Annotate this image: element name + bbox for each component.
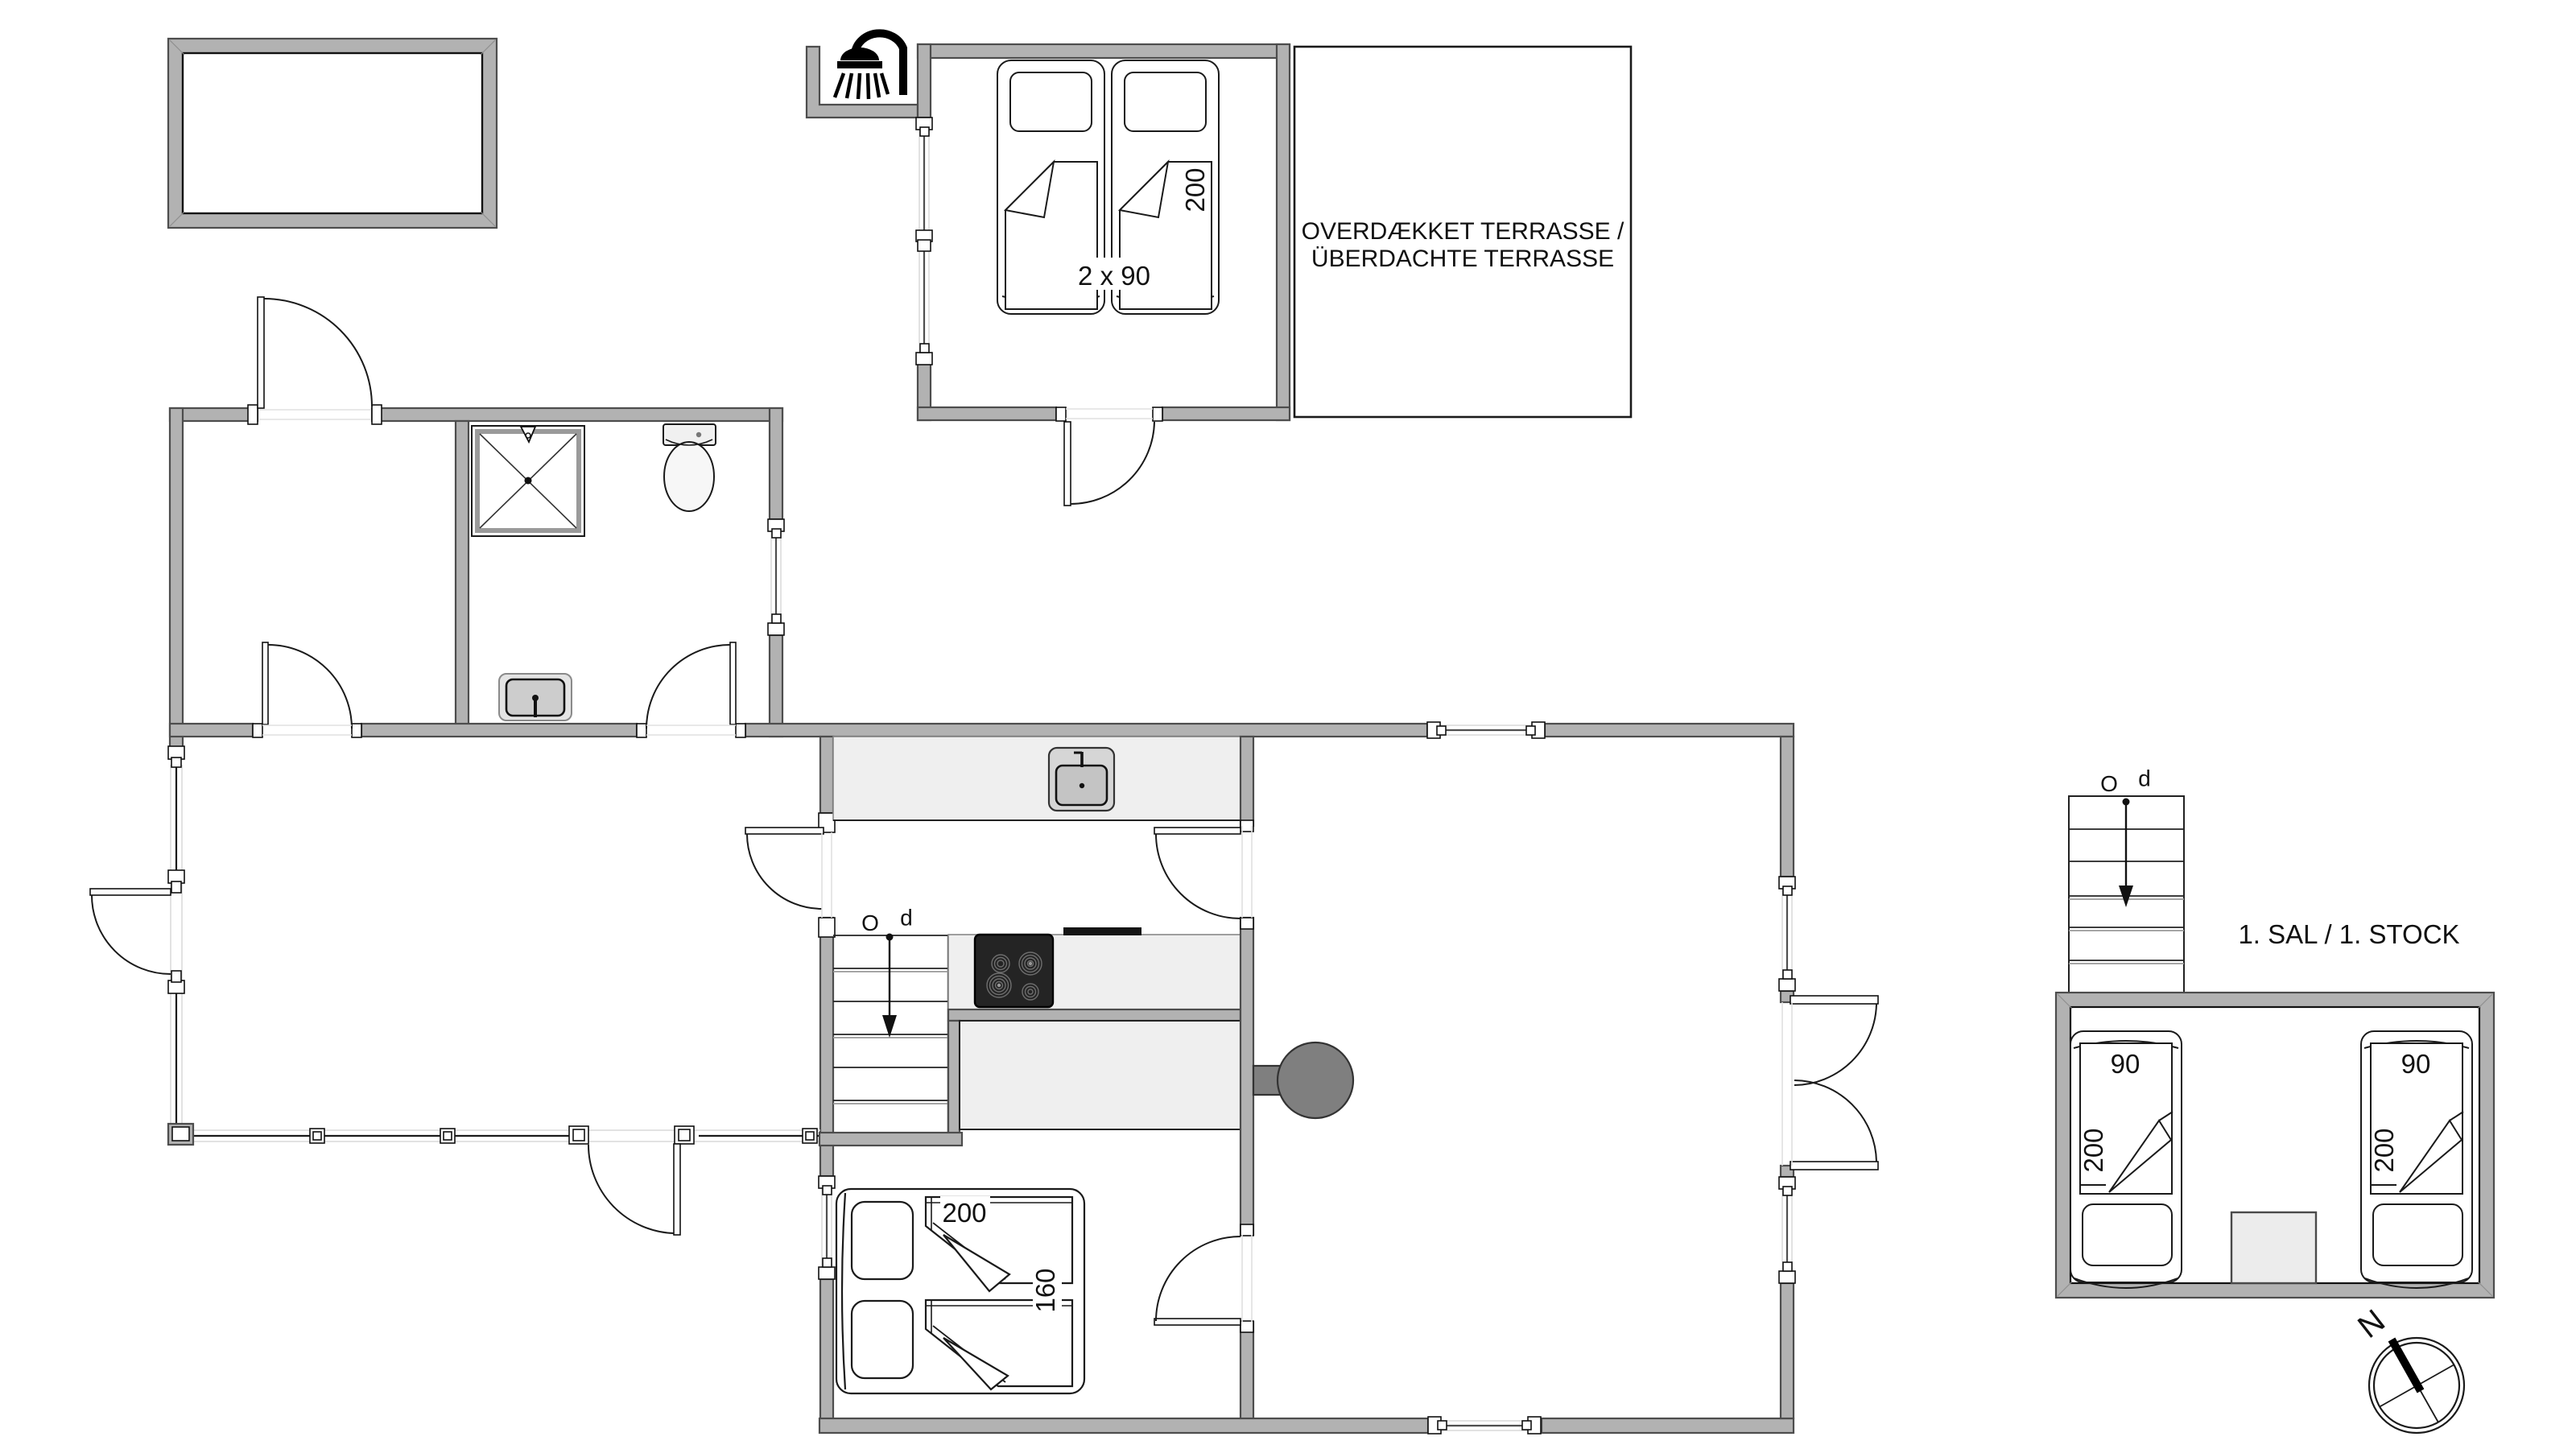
svg-text:ÜBERDACHTE TERRASSE: ÜBERDACHTE TERRASSE [1311,246,1614,272]
svg-text:p: p [2138,770,2151,795]
svg-text:OVERDÆKKET TERRASSE /: OVERDÆKKET TERRASSE / [1302,218,1624,245]
svg-text:200: 200 [1180,167,1210,212]
svg-text:90: 90 [2401,1049,2431,1079]
svg-text:p: p [900,909,913,934]
svg-text:200: 200 [942,1198,986,1228]
svg-text:O: O [2100,771,2118,796]
svg-text:O: O [861,910,879,935]
svg-text:90: 90 [2111,1049,2140,1079]
svg-text:2 x 90: 2 x 90 [1078,261,1150,291]
svg-text:200: 200 [2369,1128,2399,1172]
svg-text:160: 160 [1030,1268,1060,1312]
svg-text:200: 200 [2079,1128,2108,1172]
svg-text:1. SAL / 1. STOCK: 1. SAL / 1. STOCK [2238,919,2459,949]
